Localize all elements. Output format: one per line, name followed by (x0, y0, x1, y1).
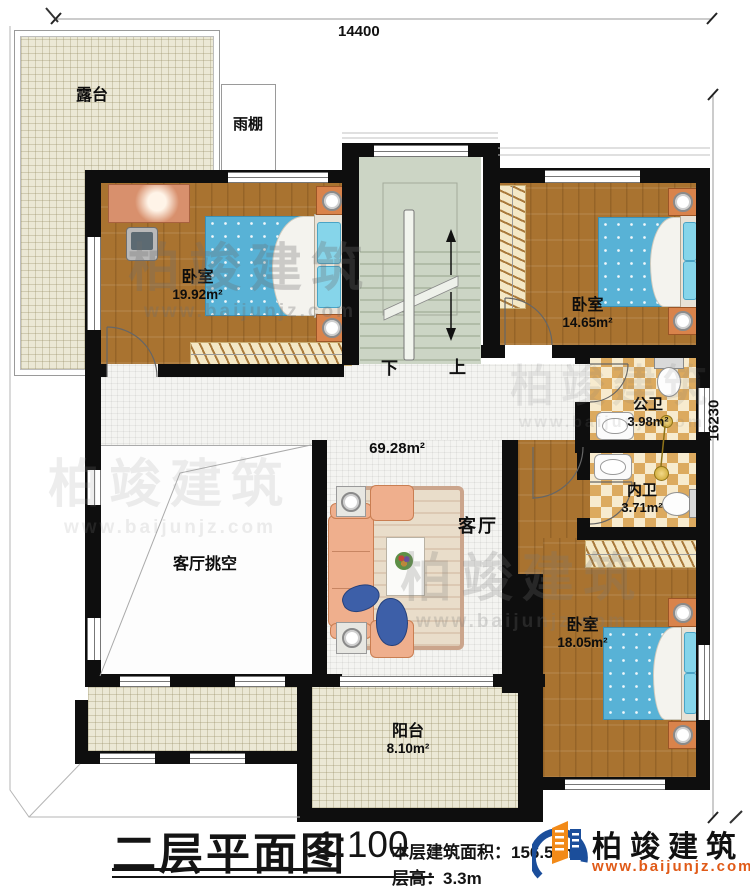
toilet-icon (657, 367, 681, 397)
room-name: 露台 (62, 86, 122, 105)
room-area: 8.10m² (368, 741, 448, 757)
room-label-living: 客厅 (448, 516, 508, 538)
person-figure (376, 598, 408, 646)
stairs-up-label: 上 (449, 353, 466, 378)
stairwell-floor (359, 157, 481, 365)
window (120, 676, 170, 687)
drawing-title: 二层平面图 (112, 818, 347, 882)
pillow (683, 222, 697, 261)
wall (575, 440, 710, 453)
wall (312, 674, 342, 687)
side-table (336, 622, 367, 654)
room-area: 3.98m² (612, 414, 684, 430)
room-name: 卧室 (150, 268, 245, 287)
sliding-door (340, 676, 493, 687)
room-label-bedroom-ne: 卧室 14.65m² (540, 296, 635, 331)
room-area: 19.92m² (150, 287, 245, 303)
room-label-terrace: 露台 (62, 86, 122, 105)
window (190, 753, 245, 764)
pillow (317, 266, 341, 308)
window (87, 470, 101, 505)
wall (342, 143, 359, 365)
lamp-icon (322, 191, 342, 211)
room-label-bath-public: 公卫 3.98m² (612, 396, 684, 430)
room-name: 内卫 (606, 482, 678, 500)
nightstand (668, 598, 698, 627)
title-underline (112, 876, 434, 878)
room-label-canopy: 雨棚 (222, 116, 274, 134)
side-table (336, 486, 366, 517)
pillow (683, 261, 697, 300)
wardrobe (190, 342, 352, 366)
stairs-down-label: 下 (381, 354, 398, 379)
brand-website: www.baijunjz.com (592, 858, 750, 875)
lamp-icon (341, 492, 361, 512)
wall (577, 440, 590, 480)
room-label-balcony: 阳台 8.10m² (368, 722, 448, 757)
window (235, 676, 285, 687)
wardrobe (585, 540, 697, 568)
room-label-bath-ensuite: 内卫 3.71m² (606, 482, 678, 516)
dimension-height: 16230 (706, 395, 723, 447)
window (228, 172, 328, 183)
nightstand (668, 188, 698, 216)
desk (108, 184, 190, 223)
lamp-icon (673, 725, 693, 745)
flower-vase-icon (395, 552, 413, 570)
brand-logo-icon (532, 814, 588, 882)
window (565, 779, 665, 790)
dimension-width: 14400 (338, 23, 380, 40)
title-underline (112, 868, 304, 871)
room-area: 14.65m² (540, 315, 635, 331)
room-name: 卧室 (540, 296, 635, 315)
window (545, 170, 640, 183)
pillow (317, 222, 341, 264)
room-name: 客厅挑空 (140, 555, 270, 574)
lamp-icon (322, 318, 342, 338)
lamp-icon (673, 603, 693, 623)
room-area: 3.71m² (606, 500, 678, 516)
wardrobe (498, 185, 526, 309)
wall (575, 345, 590, 364)
living-area-value: 69.28m² (352, 440, 442, 458)
wall (502, 440, 518, 693)
lamp-icon (342, 628, 362, 648)
computer-monitor-icon (126, 227, 158, 261)
room-name: 卧室 (535, 616, 630, 635)
room-name: 公卫 (612, 396, 684, 414)
lamp-icon (673, 311, 693, 331)
wall (158, 364, 344, 377)
room-name: 客厅 (448, 516, 508, 538)
shower-knob-icon (654, 466, 669, 481)
nightstand (668, 307, 698, 335)
room-label-bedroom-nw: 卧室 19.92m² (150, 268, 245, 303)
wall (481, 345, 505, 358)
armchair (370, 485, 414, 521)
lower-roof-strip (88, 687, 300, 751)
floor-plan: 露台 雨棚 卧室 19.92m² 卧室 14.65m² 公卫 3.98m² 内卫… (0, 0, 750, 889)
floor-height-text: 层高：3.3m (392, 864, 482, 889)
lamp-icon (673, 192, 693, 212)
room-label-void: 客厅挑空 (140, 555, 270, 574)
sink-icon (594, 454, 632, 480)
room-area: 69.28m² (352, 440, 442, 458)
room-label-bedroom-se: 卧室 18.05m² (535, 616, 630, 651)
window (100, 753, 155, 764)
window (87, 618, 101, 660)
room-area: 18.05m² (535, 635, 630, 651)
wall (577, 527, 710, 540)
window (87, 237, 101, 330)
nightstand (668, 721, 698, 749)
wall (312, 440, 327, 687)
room-name: 雨棚 (222, 116, 274, 134)
room-name: 阳台 (368, 722, 448, 741)
sofa-cushion-line (332, 551, 370, 553)
window (698, 645, 710, 720)
window (374, 145, 468, 157)
wall (518, 574, 543, 808)
